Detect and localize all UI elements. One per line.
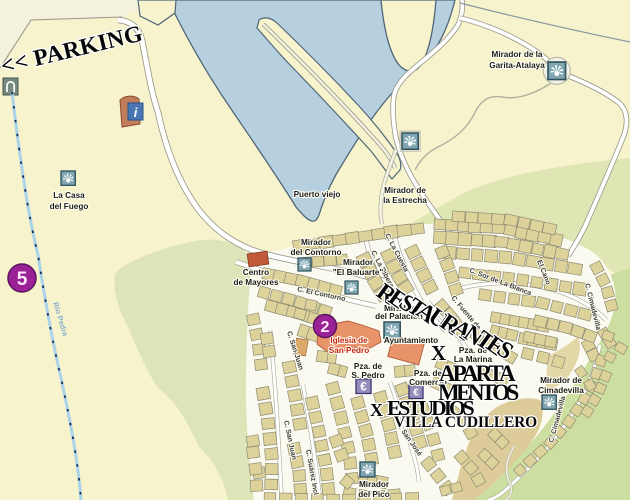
svg-text:Mirador de la: Mirador de la xyxy=(492,50,543,59)
svg-text:Cimadevilla: Cimadevilla xyxy=(538,386,584,395)
svg-text:de Mayores: de Mayores xyxy=(233,278,278,287)
svg-text:"El Baluarte": "El Baluarte" xyxy=(333,268,384,277)
svg-text:X: X xyxy=(370,400,383,420)
svg-text:VILLA CUDILLERO: VILLA CUDILLERO xyxy=(394,414,537,431)
svg-text:€: € xyxy=(360,382,367,394)
svg-text:la Estrecha: la Estrecha xyxy=(383,196,427,205)
svg-text:del Fuego: del Fuego xyxy=(50,202,89,211)
svg-text:del Pico: del Pico xyxy=(358,490,389,499)
svg-text:2: 2 xyxy=(321,319,330,336)
svg-text:Mirador: Mirador xyxy=(301,238,332,247)
svg-text:La Casa: La Casa xyxy=(53,191,85,200)
svg-text:5: 5 xyxy=(17,269,28,290)
svg-text:Centro: Centro xyxy=(243,268,269,277)
svg-text:Mirador de: Mirador de xyxy=(540,376,582,385)
svg-text:Mirador: Mirador xyxy=(359,480,390,489)
svg-text:Pza. de: Pza. de xyxy=(354,362,383,371)
svg-text:Iglesia de: Iglesia de xyxy=(330,336,368,345)
svg-text:Garita-Atalaya: Garita-Atalaya xyxy=(489,61,545,70)
svg-text:del Contorno: del Contorno xyxy=(291,248,342,257)
svg-text:Ayuntamiento: Ayuntamiento xyxy=(384,336,438,345)
svg-text:Mirador: Mirador xyxy=(343,258,374,267)
svg-text:Puerto viejo: Puerto viejo xyxy=(294,190,341,199)
svg-text:San Pedro: San Pedro xyxy=(329,346,370,355)
svg-text:Mirador de: Mirador de xyxy=(384,186,426,195)
svg-text:S. Pedro: S. Pedro xyxy=(351,371,384,380)
svg-text:i: i xyxy=(134,105,138,120)
